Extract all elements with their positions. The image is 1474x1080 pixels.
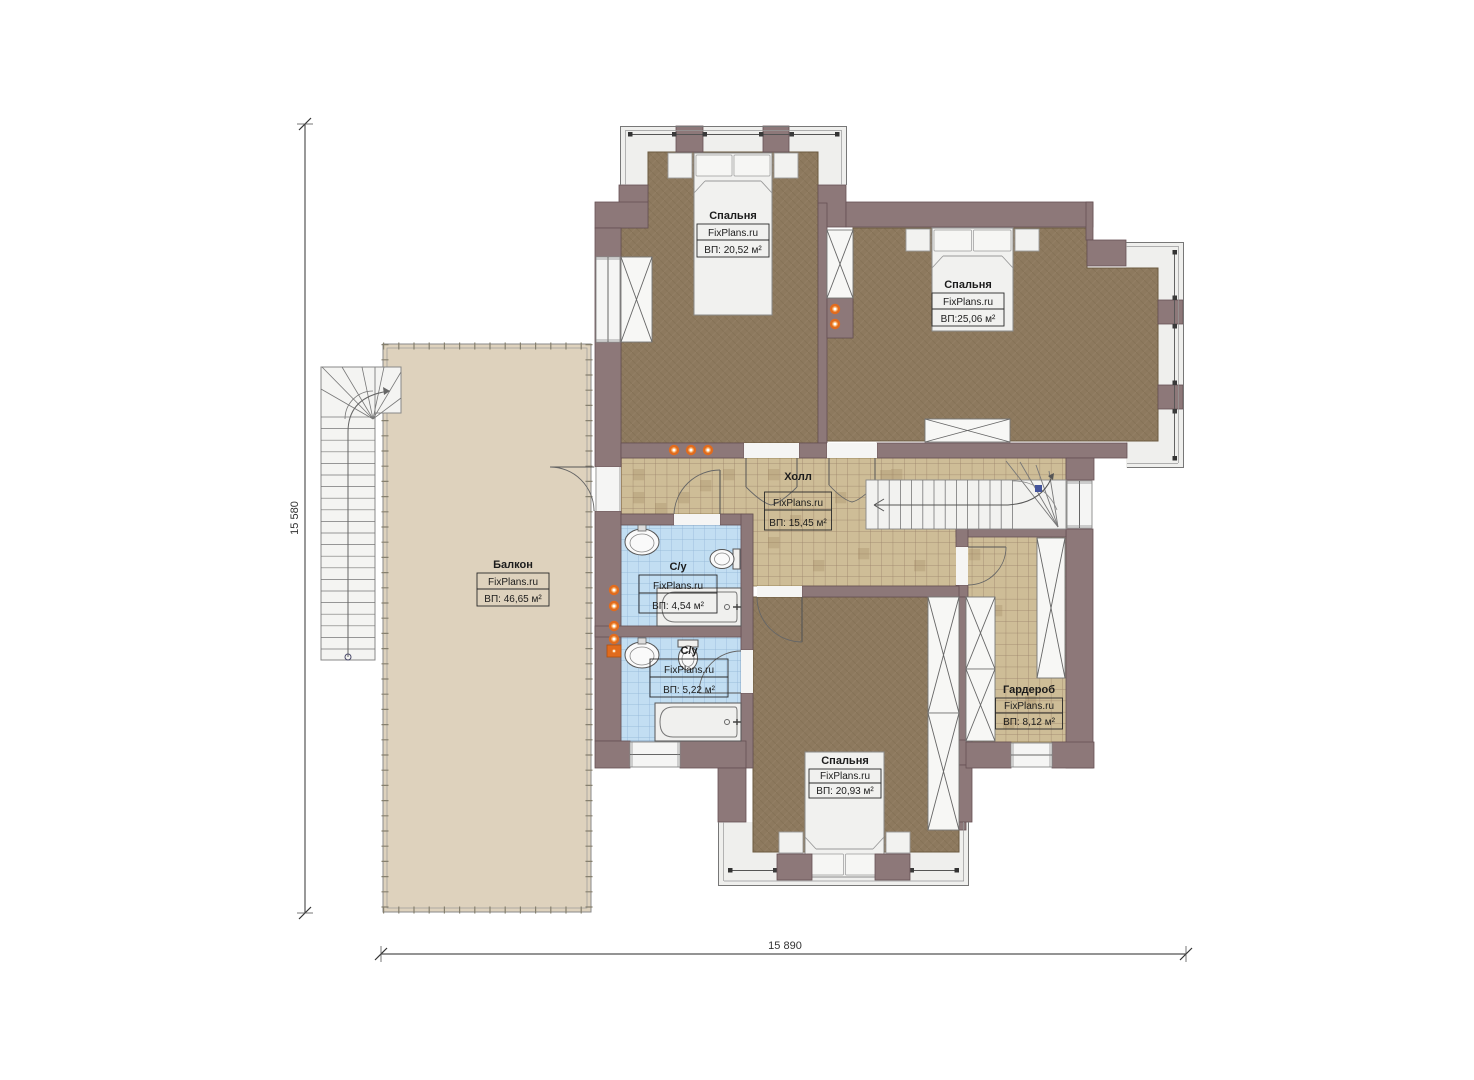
svg-text:FixPlans.ru: FixPlans.ru <box>820 771 870 782</box>
svg-text:15 890: 15 890 <box>768 940 802 952</box>
svg-text:ВП: 5,22 м²: ВП: 5,22 м² <box>663 685 716 696</box>
svg-text:ВП: 4,54 м²: ВП: 4,54 м² <box>652 601 705 612</box>
svg-text:ВП: 8,12 м²: ВП: 8,12 м² <box>1003 717 1056 728</box>
svg-text:ВП:25,06 м²: ВП:25,06 м² <box>941 314 996 325</box>
svg-text:Спальня: Спальня <box>709 210 757 222</box>
svg-text:ВП: 46,65 м²: ВП: 46,65 м² <box>484 594 542 605</box>
svg-text:Спальня: Спальня <box>821 755 869 767</box>
svg-text:Спальня: Спальня <box>944 279 992 291</box>
svg-text:ВП: 15,45 м²: ВП: 15,45 м² <box>769 518 827 529</box>
svg-text:FixPlans.ru: FixPlans.ru <box>708 228 758 239</box>
svg-text:FixPlans.ru: FixPlans.ru <box>943 297 993 308</box>
svg-text:С/у: С/у <box>680 645 698 657</box>
svg-text:FixPlans.ru: FixPlans.ru <box>1004 701 1054 712</box>
svg-text:С/у: С/у <box>669 561 687 573</box>
svg-text:FixPlans.ru: FixPlans.ru <box>664 665 714 676</box>
svg-text:Гардероб: Гардероб <box>1003 684 1055 696</box>
svg-text:15 580: 15 580 <box>289 501 301 535</box>
svg-text:ВП: 20,52 м²: ВП: 20,52 м² <box>704 245 762 256</box>
svg-text:FixPlans.ru: FixPlans.ru <box>773 498 823 509</box>
svg-text:Холл: Холл <box>784 471 812 483</box>
svg-text:FixPlans.ru: FixPlans.ru <box>653 581 703 592</box>
svg-text:ВП: 20,93 м²: ВП: 20,93 м² <box>816 786 874 797</box>
svg-text:FixPlans.ru: FixPlans.ru <box>488 577 538 588</box>
svg-text:Балкон: Балкон <box>493 559 533 571</box>
